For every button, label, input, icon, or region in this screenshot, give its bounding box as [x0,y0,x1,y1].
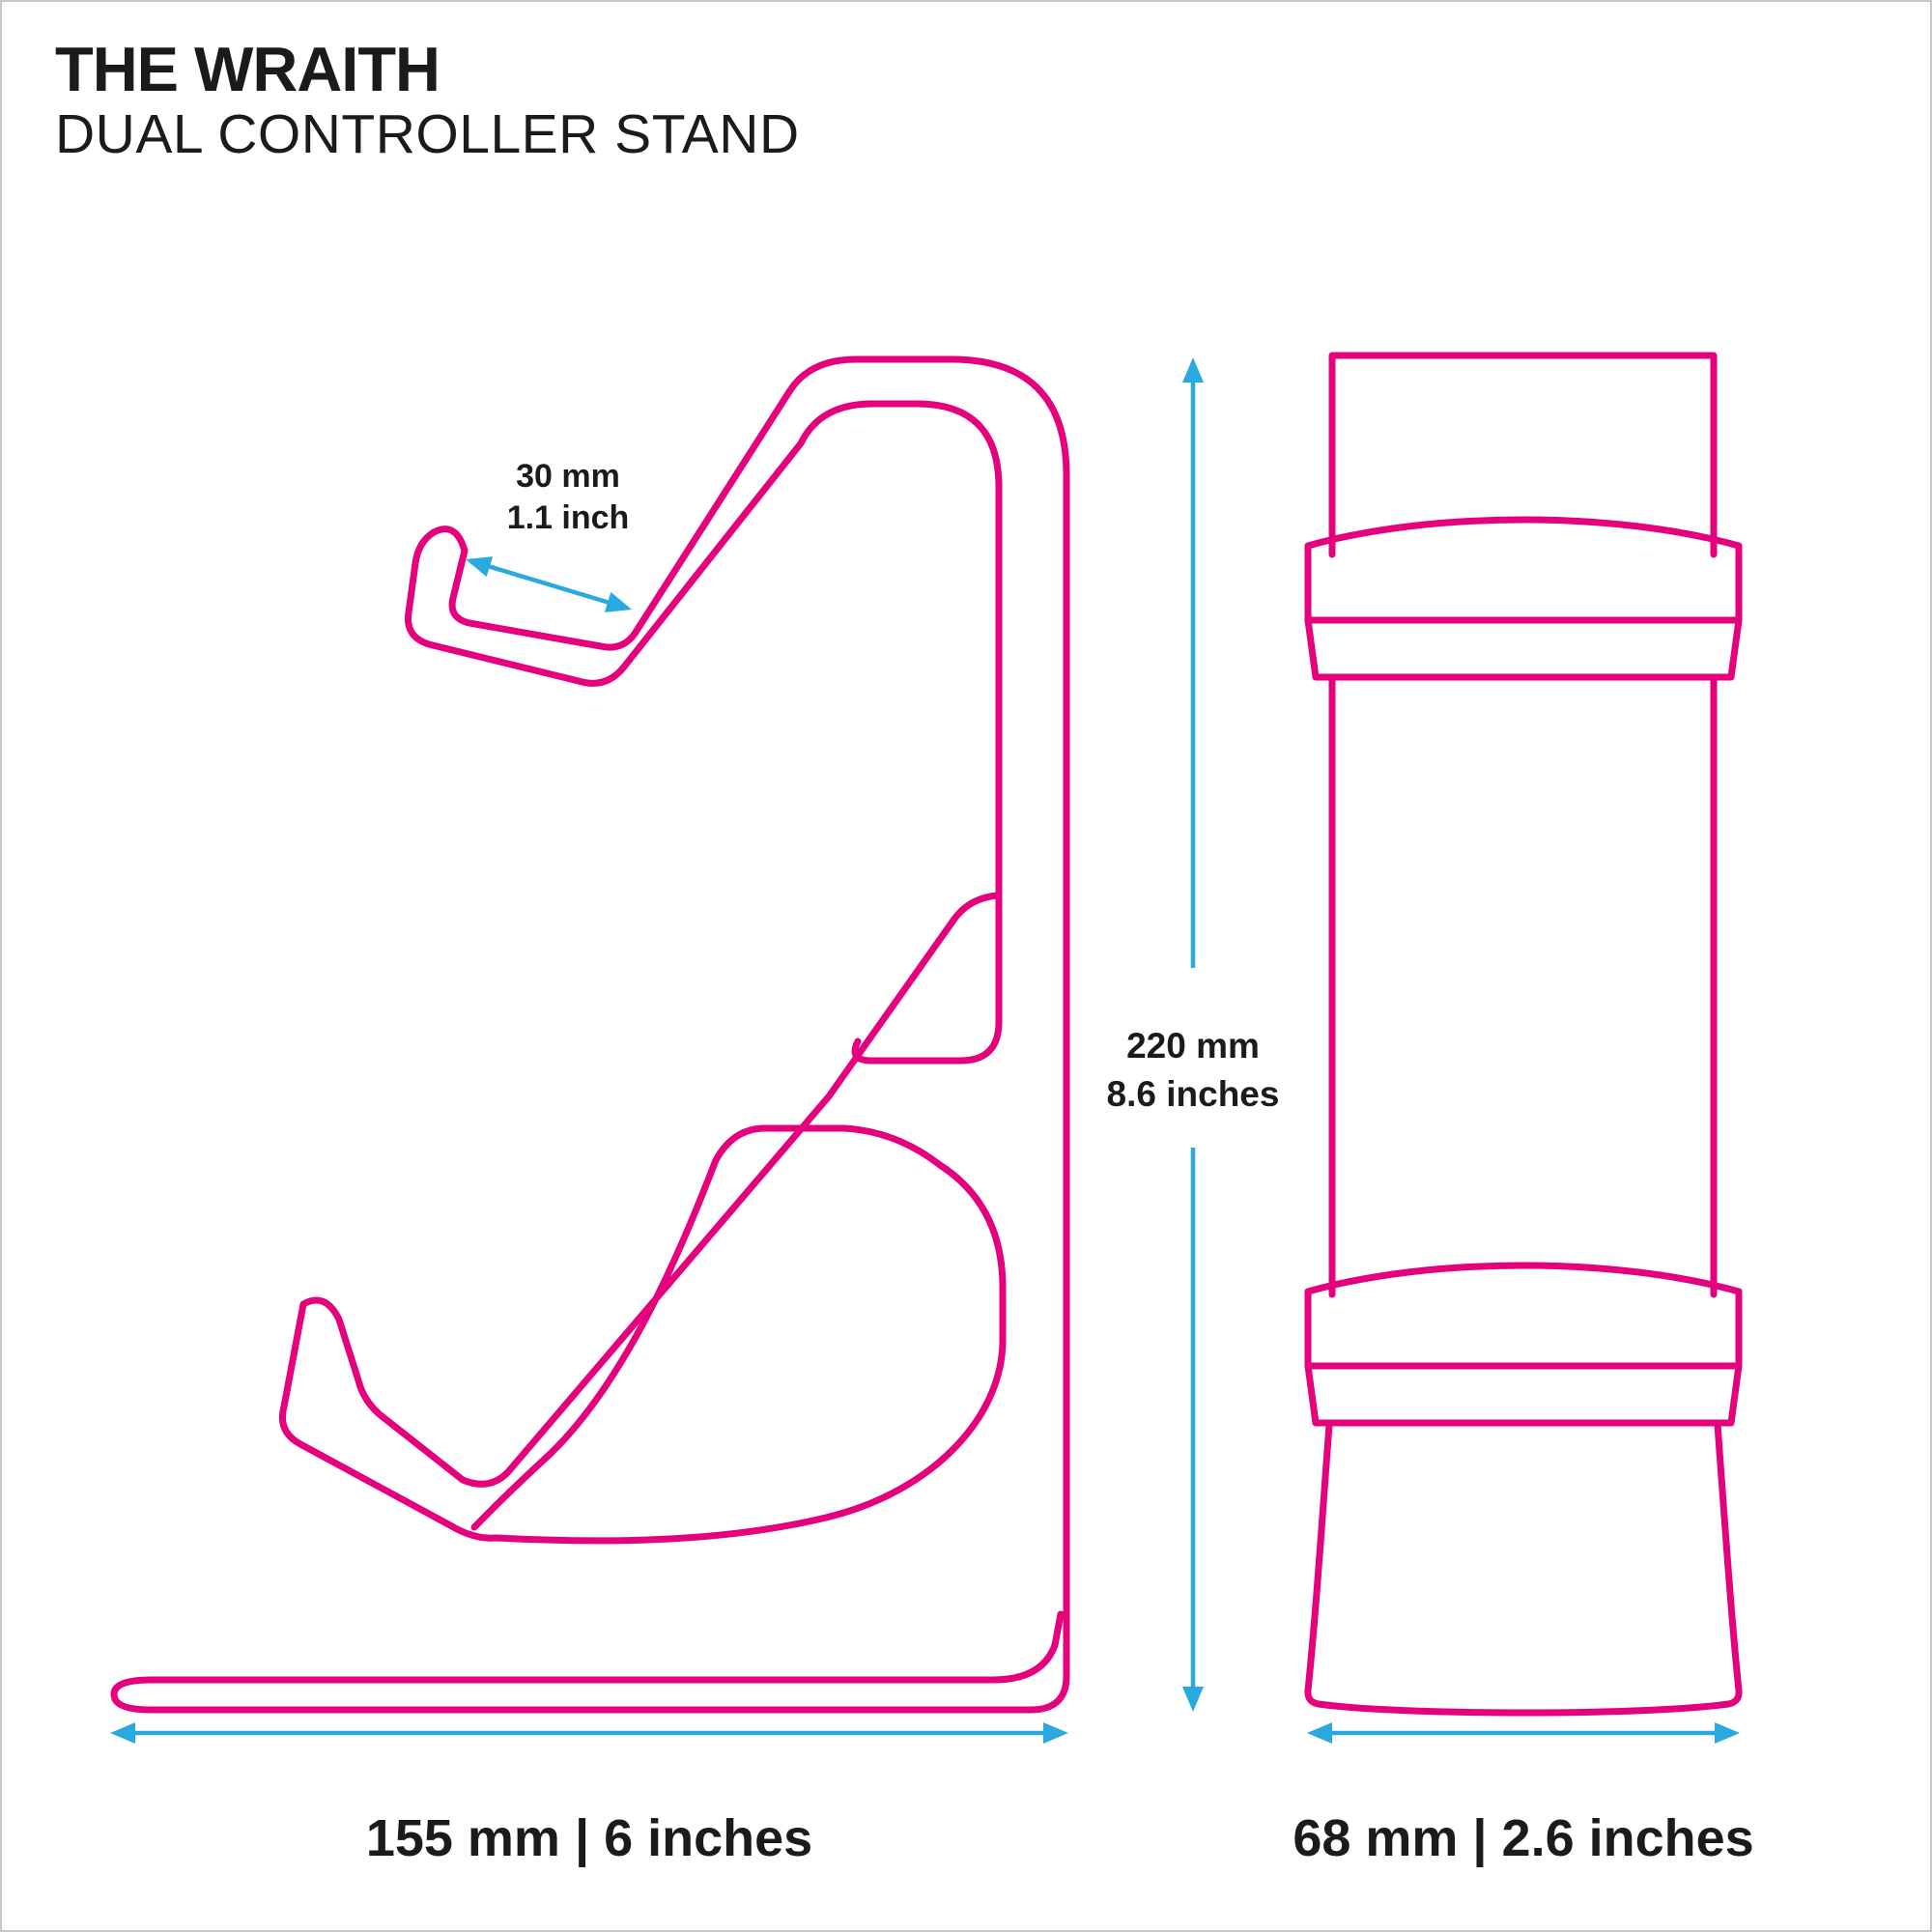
arrowhead-right-icon [605,592,632,612]
page-title: THE WRAITH [55,35,440,104]
overall-height-label: 220 mm 8.6 inches [1107,1022,1280,1119]
overall-height-inch: 8.6 inches [1107,1070,1280,1119]
hook-depth-mm: 30 mm [507,456,630,497]
front-lower-strap-lower-band [1308,1366,1739,1423]
arrowhead-left-icon [466,556,493,577]
dim-arrow-stand-width [1307,1722,1740,1744]
arrowhead-right-icon [1715,1722,1740,1744]
dim-arrow-hook-depth [466,556,632,612]
front-view [1308,355,1739,1713]
front-lower-strap-band [1308,1265,1739,1366]
page-subtitle: DUAL CONTROLLER STAND [55,104,800,164]
hook-depth-inch: 1.1 inch [507,497,630,539]
stand-width-label: 68 mm | 2.6 inches [1293,1810,1753,1866]
front-upper-strap-band [1308,520,1739,620]
product-dimension-diagram: THE WRAITH DUAL CONTROLLER STAND 30 mm 1… [0,0,1932,1932]
front-upper-strap-lower-band [1308,620,1739,677]
front-base-skirt [1308,1425,1739,1713]
dimension-annotations [110,357,1740,1744]
arrowhead-up-icon [1182,357,1204,383]
side-upper-hook-inner-outline [408,404,999,1061]
hook-depth-label: 30 mm 1.1 inch [507,456,630,539]
side-profile-view [114,359,1066,1710]
diagram-canvas [2,2,1932,1932]
arrowhead-left-icon [110,1722,135,1744]
arrowhead-down-icon [1182,1687,1204,1712]
hook-depth-dimension-line [488,566,610,603]
base-depth-label: 155 mm | 6 inches [366,1810,812,1866]
overall-height-mm: 220 mm [1107,1022,1280,1070]
side-body-outline [114,359,1066,1710]
arrowhead-left-icon [1307,1722,1332,1744]
dim-arrow-base-depth [110,1722,1068,1744]
arrowhead-right-icon [1043,1722,1068,1744]
side-lower-hook-shelf-outline [282,895,1003,1541]
front-top-section [1332,355,1714,554]
